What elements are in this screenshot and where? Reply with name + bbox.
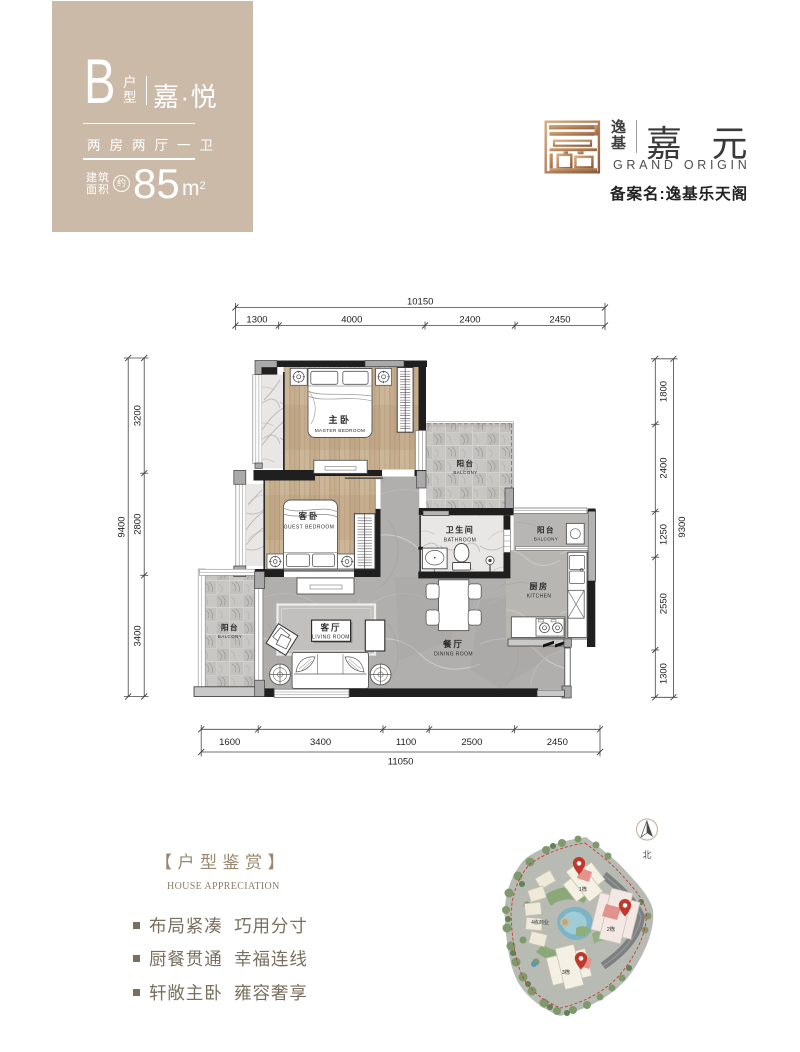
svg-text:10150: 10150: [407, 297, 433, 308]
svg-text:1栋: 1栋: [579, 885, 588, 893]
svg-text:北: 北: [642, 850, 651, 860]
svg-text:BALCONY: BALCONY: [534, 537, 558, 542]
svg-text:3栋: 3栋: [562, 968, 571, 976]
svg-text:1800: 1800: [659, 381, 670, 402]
svg-text:阳台: 阳台: [537, 525, 555, 535]
svg-text:BALCONY: BALCONY: [218, 634, 242, 639]
svg-text:主卧: 主卧: [328, 414, 351, 425]
svg-text:2500: 2500: [461, 737, 482, 748]
svg-text:1300: 1300: [659, 663, 670, 684]
svg-text:MASTER BEDROOM: MASTER BEDROOM: [315, 428, 366, 434]
svg-text:4栋商业: 4栋商业: [531, 919, 549, 926]
svg-text:客厅: 客厅: [319, 623, 341, 633]
svg-text:2400: 2400: [459, 315, 480, 326]
svg-text:KITCHEN: KITCHEN: [527, 594, 552, 600]
svg-text:1600: 1600: [219, 737, 240, 748]
svg-text:3200: 3200: [133, 405, 144, 426]
svg-text:2400: 2400: [659, 457, 670, 478]
svg-text:3400: 3400: [133, 625, 144, 646]
svg-text:2450: 2450: [549, 315, 570, 326]
svg-text:2450: 2450: [547, 737, 568, 748]
svg-text:3400: 3400: [310, 737, 331, 748]
svg-text:1250: 1250: [659, 524, 670, 545]
svg-text:阳台: 阳台: [221, 622, 239, 632]
svg-text:卫生间: 卫生间: [446, 525, 475, 535]
svg-text:BATHROOM: BATHROOM: [444, 538, 477, 544]
svg-text:LIVING ROOM: LIVING ROOM: [312, 635, 350, 641]
svg-text:餐厅: 餐厅: [442, 639, 464, 649]
svg-text:BALCONY: BALCONY: [453, 470, 477, 475]
svg-text:客卧: 客卧: [297, 511, 319, 521]
svg-text:1100: 1100: [396, 737, 416, 748]
svg-text:2800: 2800: [133, 514, 144, 535]
svg-text:11050: 11050: [388, 757, 414, 768]
svg-text:2栋: 2栋: [607, 925, 616, 933]
svg-text:阳台: 阳台: [457, 458, 475, 468]
svg-text:GUEST BEDROOM: GUEST BEDROOM: [284, 525, 335, 531]
svg-text:4000: 4000: [341, 315, 362, 326]
svg-text:DINING ROOM: DINING ROOM: [434, 652, 473, 658]
svg-text:9400: 9400: [117, 516, 128, 537]
svg-text:2550: 2550: [659, 593, 670, 614]
svg-text:9300: 9300: [677, 516, 688, 537]
svg-text:厨房: 厨房: [530, 581, 549, 591]
svg-text:1300: 1300: [246, 315, 267, 326]
